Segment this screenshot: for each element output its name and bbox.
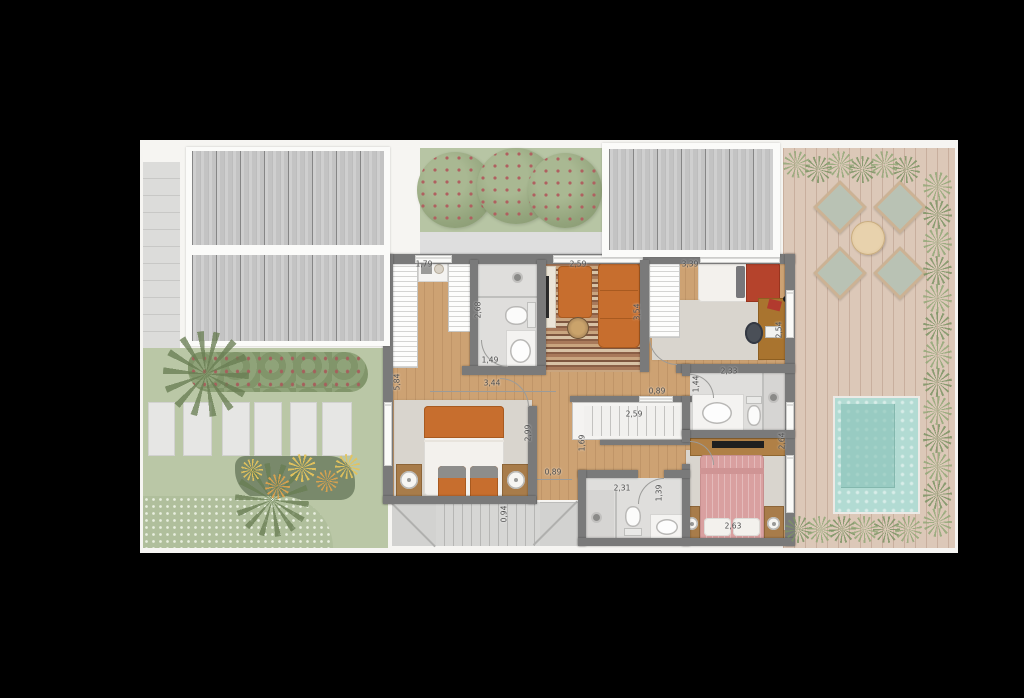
dimension-label: 1,69 [578, 435, 586, 452]
dimension-label: 1,79 [416, 260, 433, 268]
dimension-label: 1,39 [655, 485, 663, 502]
dimension-labels-layer: 1,792,681,493,445,842,593,543,392,542,33… [0, 0, 1024, 698]
dimension-label: 2,63 [725, 522, 742, 530]
dimension-label: 2,64 [778, 433, 786, 450]
dimension-label: 2,99 [524, 425, 532, 442]
dimension-label: 2,54 [775, 322, 783, 339]
dimension-label: 2,68 [474, 302, 482, 319]
dimension-label: 2,59 [626, 410, 643, 418]
dimension-label: 2,59 [570, 260, 587, 268]
dimension-label: 5,84 [393, 374, 401, 391]
dimension-label: 2,33 [721, 367, 738, 375]
dimension-label: 3,54 [633, 304, 641, 321]
dimension-label: 0,89 [649, 387, 666, 395]
dimension-label: 0,94 [500, 506, 508, 523]
dimension-label: 3,39 [682, 260, 699, 268]
dimension-label: 1,44 [692, 376, 700, 393]
dimension-label: 3,44 [484, 379, 501, 387]
dimension-label: 0,89 [545, 468, 562, 476]
dimension-label: 1,49 [482, 356, 499, 364]
floor-plan-image: 1,792,681,493,445,842,593,543,392,542,33… [0, 0, 1024, 698]
dimension-label: 2,31 [614, 484, 631, 492]
